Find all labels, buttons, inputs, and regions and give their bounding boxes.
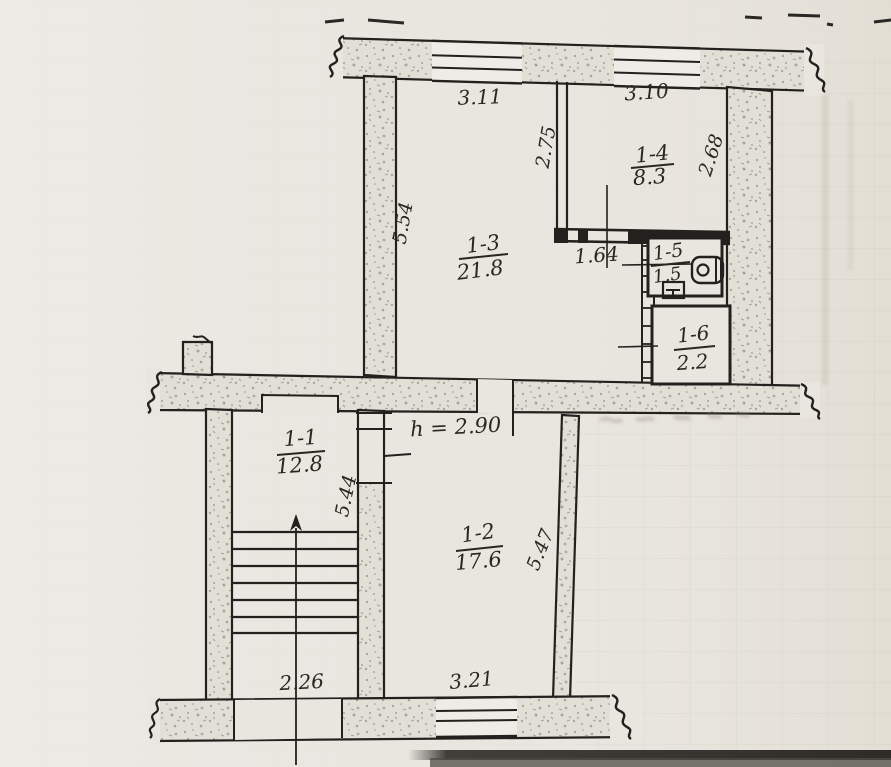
- dim-bottom-mid-span: 3.21: [448, 666, 494, 694]
- dim-top-span-right: 3.10: [623, 78, 669, 105]
- wall-segment: [554, 229, 568, 243]
- graph-paper-bleed-column: [778, 55, 891, 400]
- stair-niche: [262, 395, 338, 413]
- break-top-right: [804, 44, 825, 96]
- window-bottom: [436, 697, 517, 737]
- room-1-6-area: 2.2: [675, 349, 709, 375]
- room-1-5-number: 1-5: [651, 239, 684, 265]
- room-1-1-area: 12.8: [275, 451, 323, 478]
- dim-top-span-left: 3.11: [457, 84, 502, 110]
- room-1-6-number: 1-6: [676, 320, 711, 347]
- room-1-3-number: 1-3: [465, 230, 502, 258]
- faint-column-mark: [822, 95, 828, 385]
- break-middle-left: [146, 368, 162, 416]
- room-1-2-area: 17.6: [454, 547, 503, 575]
- room-1-1-number: 1-1: [283, 425, 318, 451]
- stair-door-opening: [359, 413, 383, 482]
- wall-upper-right: [727, 87, 772, 390]
- room-1-2-number: 1-2: [460, 519, 497, 547]
- break-middle-right: [800, 382, 820, 419]
- break-bottom-right: [610, 692, 642, 742]
- floor-plan-canvas: 3.11 3.10 2.75 2.68 5.54 1-4 8.3 1-3 21.…: [0, 0, 891, 767]
- dim-bottom-left-span: 2.26: [278, 669, 325, 695]
- dim-hall-width: 1.64: [573, 241, 619, 268]
- dim-line-room6: [618, 346, 658, 347]
- wall-segment: [578, 230, 588, 243]
- faint-column-mark: [848, 100, 853, 270]
- wall-bottom: [157, 696, 640, 741]
- wall-chimney-protrusion: [183, 342, 212, 375]
- window-top-1: [432, 41, 522, 84]
- room-1-5-area: 1.5: [652, 263, 683, 288]
- bottom-wall-landing: [234, 699, 342, 740]
- page-edge-shadow: [430, 758, 891, 767]
- wall-stair-left: [206, 409, 232, 702]
- break-bottom-left: [150, 696, 160, 744]
- room-1-4-area: 8.3: [632, 164, 667, 190]
- ceiling-height-label: h = 2.90: [409, 413, 501, 442]
- scanned-floor-plan-page: 3.11 3.10 2.75 2.68 5.54 1-4 8.3 1-3 21.…: [0, 0, 891, 767]
- break-top-left: [325, 32, 344, 82]
- middle-wall-door-opening: [477, 379, 513, 414]
